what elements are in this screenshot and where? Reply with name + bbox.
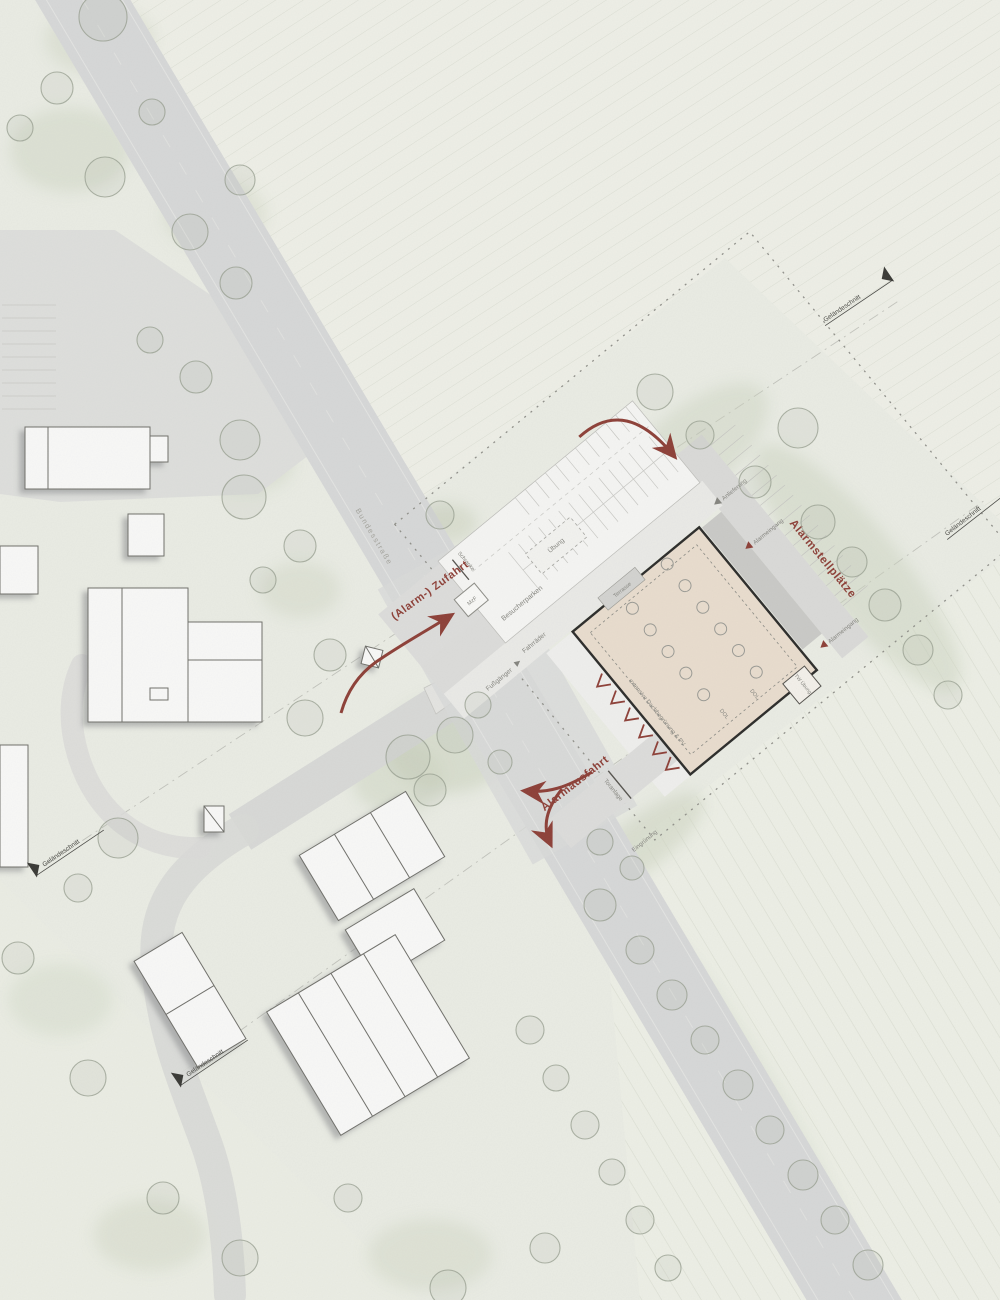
- site-plan-canvas: Bundesstraße Übung Besucherparken MzF Sc…: [0, 0, 1000, 1300]
- site-plan-drawing: Bundesstraße Übung Besucherparken MzF Sc…: [0, 0, 1000, 1300]
- paper-texture: [0, 0, 1000, 1300]
